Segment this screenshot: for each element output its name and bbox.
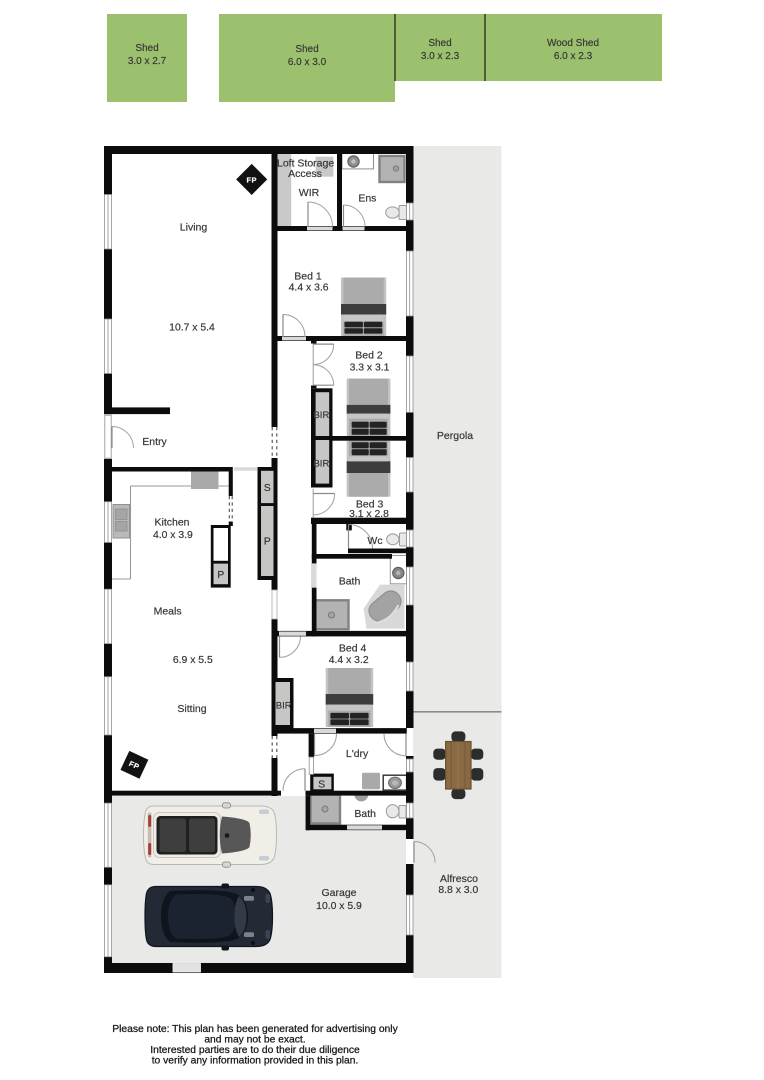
svg-text:and may not be exact.: and may not be exact.	[204, 1035, 305, 1046]
svg-text:L'dry: L'dry	[346, 748, 369, 760]
svg-text:Bath: Bath	[354, 808, 376, 820]
svg-text:Entry: Entry	[142, 436, 167, 448]
svg-text:10.7 x 5.4: 10.7 x 5.4	[169, 323, 215, 334]
svg-text:Garage: Garage	[321, 887, 356, 899]
svg-text:6.0 x 3.0: 6.0 x 3.0	[288, 57, 327, 68]
svg-text:to verify any information prov: to verify any information provided in th…	[152, 1056, 359, 1067]
svg-text:4.0 x 3.9: 4.0 x 3.9	[153, 530, 193, 541]
svg-text:Bed 2: Bed 2	[355, 350, 383, 362]
svg-text:Shed: Shed	[428, 38, 451, 49]
svg-text:Access: Access	[288, 168, 322, 180]
svg-text:Wood Shed: Wood Shed	[547, 38, 599, 49]
svg-text:S: S	[264, 482, 271, 494]
svg-text:4.4 x 3.2: 4.4 x 3.2	[329, 655, 369, 666]
svg-text:Bath: Bath	[339, 575, 361, 587]
svg-text:Bed 1: Bed 1	[294, 271, 322, 283]
svg-text:8.8 x 3.0: 8.8 x 3.0	[438, 885, 478, 896]
svg-text:3.0 x 2.3: 3.0 x 2.3	[421, 51, 460, 62]
svg-text:WIR: WIR	[299, 187, 320, 199]
svg-text:Ens: Ens	[358, 193, 376, 205]
svg-text:Interested parties are to do t: Interested parties are to do their due d…	[150, 1045, 360, 1056]
svg-text:10.0 x 5.9: 10.0 x 5.9	[316, 901, 362, 912]
svg-text:6.0 x 2.3: 6.0 x 2.3	[554, 51, 593, 62]
svg-text:S: S	[318, 778, 325, 790]
svg-text:Shed: Shed	[295, 44, 318, 55]
svg-text:BIR: BIR	[313, 410, 329, 421]
svg-text:Wc: Wc	[367, 535, 382, 547]
svg-text:FP: FP	[247, 175, 257, 184]
svg-text:P: P	[264, 536, 271, 548]
svg-text:Bed 4: Bed 4	[339, 643, 367, 655]
svg-text:Shed: Shed	[135, 43, 158, 54]
svg-text:Living: Living	[180, 222, 208, 234]
svg-text:Meals: Meals	[154, 605, 182, 617]
svg-text:3.3 x 3.1: 3.3 x 3.1	[350, 362, 390, 373]
svg-text:BIR: BIR	[313, 459, 329, 470]
svg-text:Alfresco: Alfresco	[440, 873, 478, 885]
svg-text:3.1 x 2.8: 3.1 x 2.8	[349, 509, 389, 520]
svg-text:6.9 x 5.5: 6.9 x 5.5	[173, 655, 213, 666]
svg-text:4.4 x 3.6: 4.4 x 3.6	[289, 283, 329, 294]
svg-text:P: P	[217, 569, 224, 581]
svg-text:Pergola: Pergola	[437, 430, 473, 442]
svg-text:3.0 x 2.7: 3.0 x 2.7	[128, 56, 167, 67]
svg-text:BIR: BIR	[276, 701, 292, 712]
svg-text:Sitting: Sitting	[177, 703, 206, 715]
svg-text:Please note: This plan has bee: Please note: This plan has been generate…	[112, 1024, 398, 1035]
svg-text:Kitchen: Kitchen	[154, 517, 189, 529]
